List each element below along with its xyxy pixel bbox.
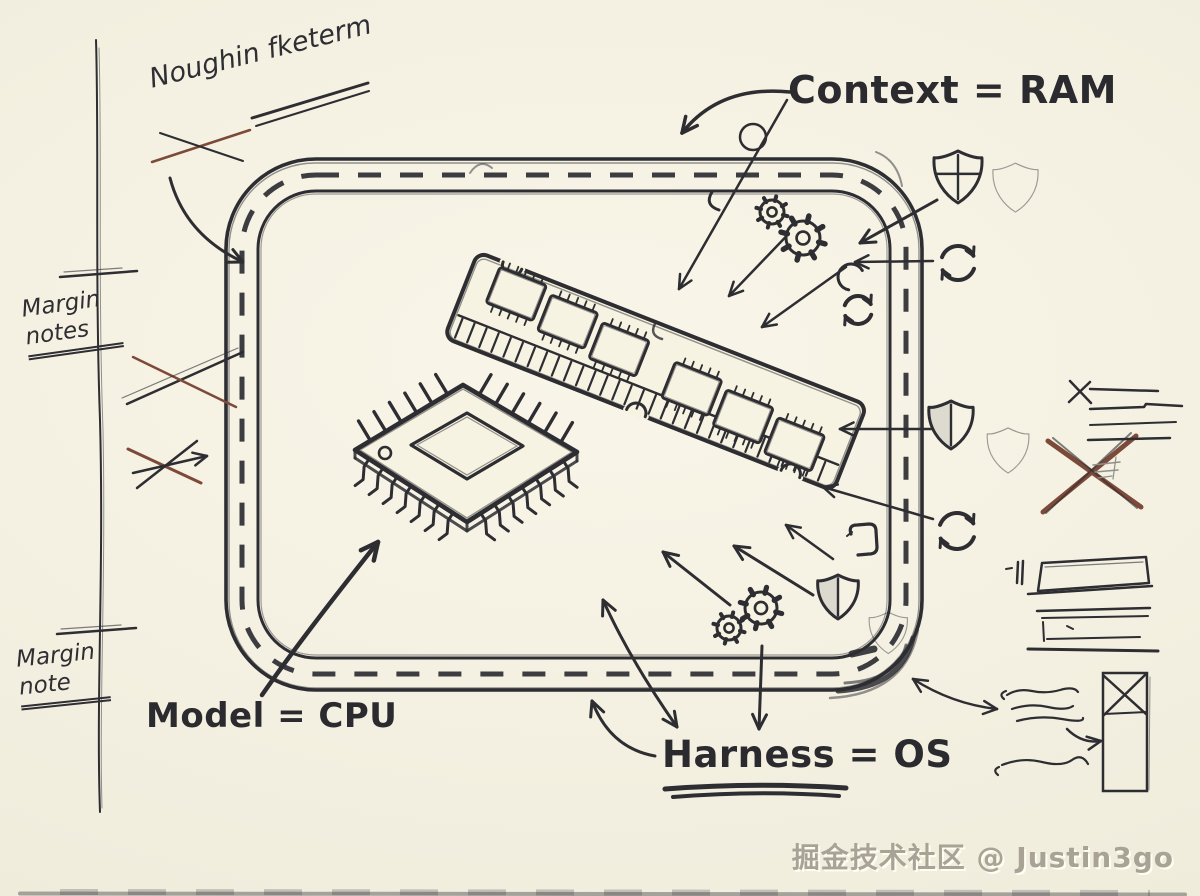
sketch-drawing xyxy=(0,0,1200,896)
margin-notes-label: Margin notes xyxy=(20,284,124,361)
refresh-icon xyxy=(940,513,974,549)
margin-note-label: Margin note xyxy=(15,637,111,710)
gear-icon xyxy=(756,196,825,260)
shield-icon xyxy=(929,401,1029,473)
right-margin-sketches xyxy=(995,389,1182,791)
refresh-icon xyxy=(942,246,974,280)
refresh-icon xyxy=(845,295,872,325)
cpu-chip xyxy=(355,375,577,540)
shield-cross-icon xyxy=(934,151,1038,212)
sketch-canvas: Noughin fketerm Context = RAM Model = CP… xyxy=(0,0,1200,896)
pin-circle-icon xyxy=(740,124,766,150)
model-cpu-label: Model = CPU xyxy=(146,696,397,736)
watermark: 掘金技术社区 @ Justin3go xyxy=(792,836,1174,876)
context-ram-label: Context = RAM xyxy=(788,68,1117,112)
bracket-icon xyxy=(847,524,877,555)
harness-os-label: Harness = OS xyxy=(662,733,953,776)
bottom-edge-line xyxy=(20,892,1185,895)
gear-icon xyxy=(713,587,781,643)
